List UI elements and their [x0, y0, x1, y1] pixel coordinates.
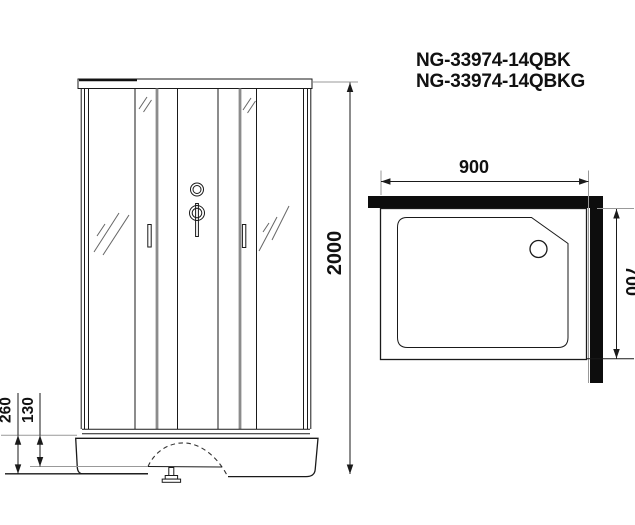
right-door-handle [242, 225, 245, 248]
dimension-width-900: 900 [381, 157, 589, 383]
dimension-label-700: 700 [622, 266, 635, 296]
back-wall [368, 196, 590, 208]
shower-tray [76, 438, 318, 476]
dimension-step-130: 130 [20, 393, 40, 467]
dimension-base-260: 260 [0, 393, 18, 474]
frame-verticals [81, 89, 311, 430]
dimension-label-900: 900 [459, 157, 489, 177]
dimension-height-2000: 2000 [313, 82, 358, 474]
front-view: 2000 260 130 [0, 79, 358, 482]
drain-icon [530, 241, 547, 258]
tray-outline-top [381, 209, 587, 360]
side-wall [590, 196, 603, 383]
adjustable-foot [162, 468, 180, 483]
tray-back-edge [148, 467, 222, 468]
bottom-frame-rail [82, 429, 310, 434]
faucet-mixer [190, 183, 205, 237]
dimension-label-130: 130 [20, 397, 37, 423]
technical-drawing-page: NG-33974-14QBK NG-33974-14QBKG [0, 0, 635, 525]
tray-inner-outline [398, 218, 569, 348]
dimension-label-2000: 2000 [324, 231, 346, 276]
shower-cabin-drawing: 2000 260 130 [0, 0, 635, 525]
panel-dividers [135, 89, 257, 430]
shower-knob-icon [191, 183, 204, 196]
glass-hatch-marks [94, 97, 289, 255]
left-door-handle [148, 225, 151, 248]
top-view: 900 700 [368, 157, 635, 383]
dimension-label-260: 260 [0, 397, 15, 423]
apron-cutout-arc [148, 443, 228, 476]
